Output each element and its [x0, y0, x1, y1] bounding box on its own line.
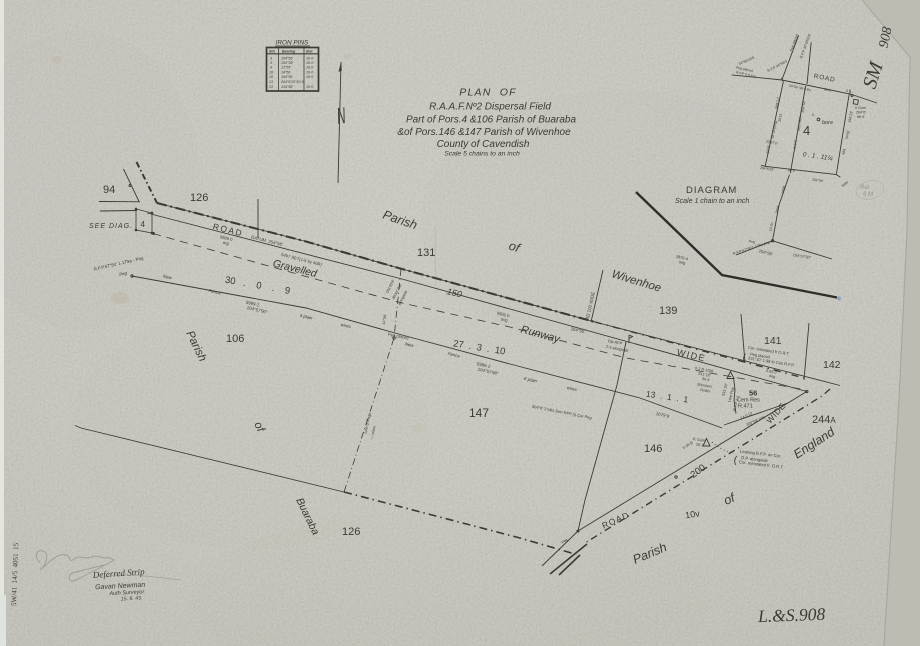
svg-text:dist: dist: [306, 50, 313, 54]
svg-text:15. 9. 43.: 15. 9. 43.: [121, 595, 143, 602]
svg-text:154°56: 154°56: [281, 75, 292, 79]
svg-text:126: 126: [190, 192, 208, 204]
svg-text:0 P: 0 P: [846, 89, 852, 93]
svg-text:147: 147: [469, 406, 489, 420]
svg-text:Scale 1 chain to an inch: Scale 1 chain to an inch: [675, 198, 749, 205]
svg-text:126: 126: [342, 526, 360, 538]
svg-text:244A: 244A: [812, 414, 836, 426]
svg-text:Rel: Rel: [860, 185, 870, 191]
svg-text:264°6': 264°6': [856, 111, 866, 115]
svg-text:6 M: 6 M: [863, 192, 873, 198]
svg-text:13°55': 13°55': [281, 66, 291, 70]
svg-text:4: 4: [803, 123, 810, 138]
svg-text:R.A.A.F.Nº2 Dispersal Field: R.A.A.F.Nº2 Dispersal Field: [429, 102, 551, 113]
svg-text:SEE DIAG.: SEE DIAG.: [89, 223, 133, 230]
svg-text:Stn: Stn: [269, 50, 276, 54]
svg-text:R.471: R.471: [738, 404, 753, 410]
svg-text:139: 139: [659, 305, 677, 317]
svg-text:134°58': 134°58': [281, 85, 293, 89]
svg-text:10·0: 10·0: [306, 61, 313, 65]
svg-text:County of Cavendish: County of Cavendish: [437, 139, 530, 150]
svg-text:3: 3: [270, 61, 272, 65]
svg-text:10·0: 10·0: [306, 75, 313, 79]
svg-text:66·9: 66·9: [857, 115, 864, 119]
svg-text:&of Pors.146 &147 Parish of Wi: &of Pors.146 &147 Parish of Wivenhoe: [397, 127, 571, 138]
svg-text:104°56': 104°56': [281, 57, 293, 61]
svg-text:DIAGRAM: DIAGRAM: [686, 185, 737, 196]
svg-text:10: 10: [269, 75, 273, 79]
svg-text:264°6'20"10·0: 264°6'20"10·0: [280, 80, 304, 84]
svg-text:bore: bore: [822, 120, 833, 126]
svg-text:131: 131: [417, 247, 435, 259]
svg-text:4: 4: [141, 220, 146, 229]
svg-text:141: 141: [764, 335, 782, 347]
svg-text:b: b: [812, 113, 814, 117]
svg-text:L.&S.908: L.&S.908: [757, 604, 826, 626]
svg-text:10·0: 10·0: [306, 66, 313, 70]
svg-text:13: 13: [269, 80, 273, 84]
svg-text:Scale 5 chains to an inch: Scale 5 chains to an inch: [444, 151, 520, 158]
svg-text:13: 13: [269, 85, 273, 89]
svg-text:10·0: 10·0: [306, 85, 313, 89]
svg-text:0 Gum: 0 Gum: [855, 106, 866, 110]
svg-text:10v: 10v: [685, 508, 701, 520]
svg-text:56: 56: [749, 389, 757, 398]
svg-text:PLAN OF: PLAN OF: [459, 87, 516, 99]
svg-text:10·0: 10·0: [306, 70, 313, 74]
svg-text:10·0: 10·0: [306, 57, 313, 61]
svg-text:106: 106: [226, 333, 244, 345]
svg-text:10: 10: [269, 70, 273, 74]
svg-text:Part of Pors.4 &106 Parish of: Part of Pors.4 &106 Parish of Buaraba: [406, 115, 577, 126]
svg-text:142: 142: [823, 359, 841, 371]
svg-text:IRON PINS: IRON PINS: [276, 40, 309, 47]
svg-text:146: 146: [644, 443, 662, 455]
svg-text:14°56: 14°56: [281, 70, 290, 74]
svg-text:Bearing: Bearing: [282, 50, 296, 54]
svg-text:9: 9: [270, 66, 272, 70]
svg-text:94: 94: [103, 184, 115, 196]
svg-text:3: 3: [270, 57, 272, 61]
svg-text:193°38': 193°38': [281, 61, 293, 65]
